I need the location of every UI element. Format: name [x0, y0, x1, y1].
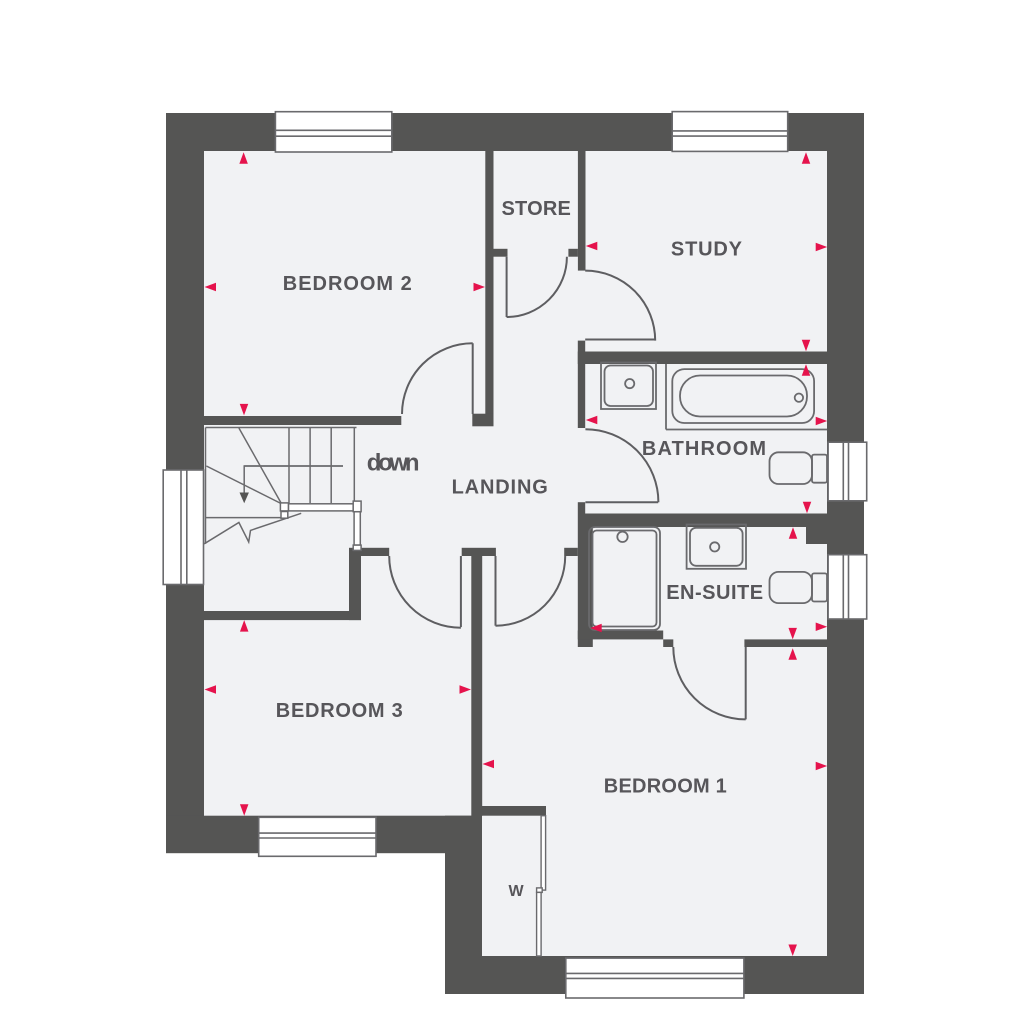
svg-text:BATHROOM: BATHROOM: [642, 438, 766, 460]
svg-text:BEDROOM 2: BEDROOM 2: [283, 273, 412, 295]
svg-text:LANDING: LANDING: [452, 477, 548, 499]
svg-text:down: down: [367, 449, 420, 476]
svg-text:EN-SUITE: EN-SUITE: [666, 582, 763, 604]
svg-text:W: W: [509, 883, 525, 900]
svg-text:STUDY: STUDY: [671, 238, 743, 260]
svg-text:BEDROOM 1: BEDROOM 1: [604, 776, 727, 798]
svg-text:BEDROOM 3: BEDROOM 3: [276, 700, 403, 722]
svg-text:STORE: STORE: [502, 198, 571, 220]
